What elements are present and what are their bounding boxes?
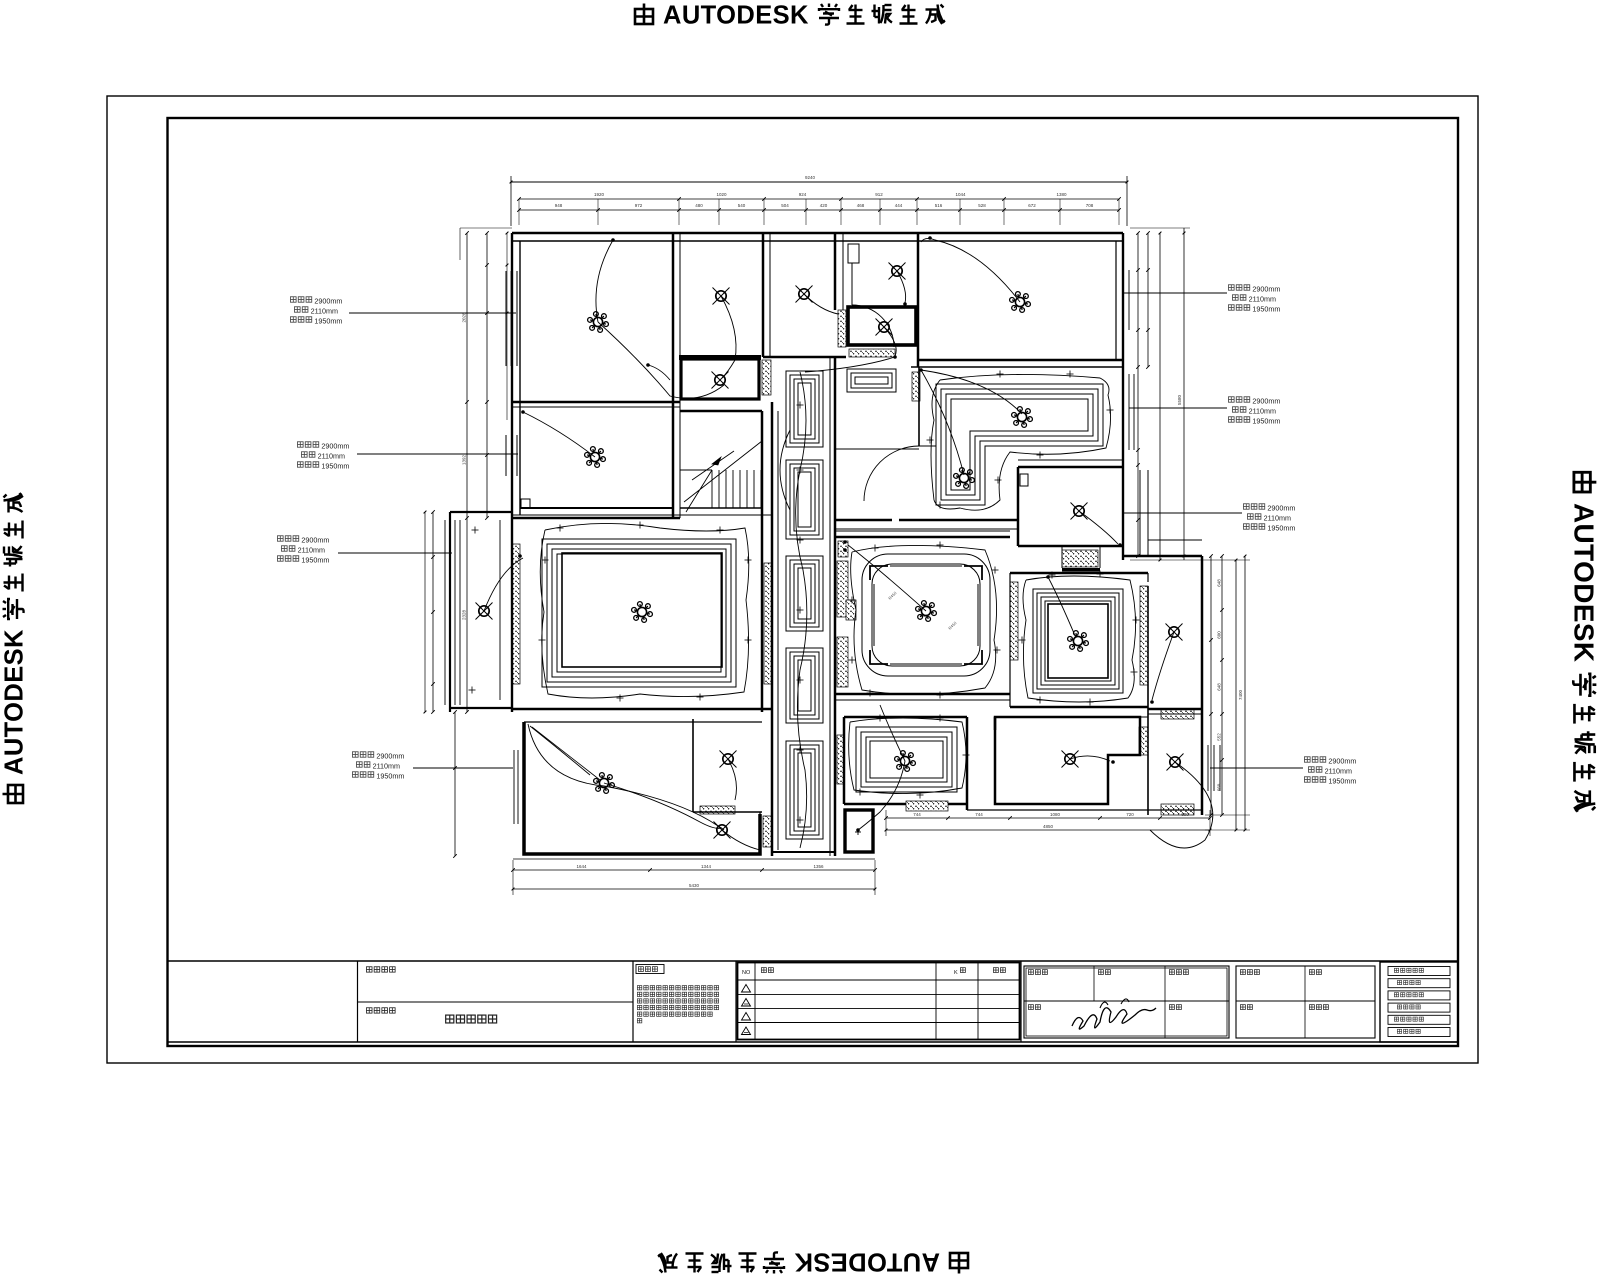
svg-text:NO: NO [742,970,751,976]
svg-text:1044: 1044 [955,192,966,197]
svg-text:1392: 1392 [462,454,467,465]
svg-text:660: 660 [1217,783,1222,791]
svg-text:744: 744 [975,812,983,817]
svg-text:516: 516 [935,203,943,208]
svg-text:1950mm: 1950mm [314,317,342,326]
svg-text:972: 972 [635,203,643,208]
svg-text:2900mm: 2900mm [1252,285,1280,294]
svg-text:2110mm: 2110mm [1249,407,1276,416]
svg-text:1020: 1020 [716,192,727,197]
svg-text:AUTODESK: AUTODESK [1568,503,1599,663]
svg-text:2900mm: 2900mm [376,752,404,761]
svg-text:720: 720 [1126,812,1134,817]
svg-text:420: 420 [820,203,828,208]
svg-text:4850: 4850 [1043,824,1054,829]
svg-text:9240: 9240 [805,175,816,180]
svg-text:672: 672 [1028,203,1036,208]
svg-text:1080: 1080 [1050,812,1061,817]
svg-text:2900mm: 2900mm [314,297,342,306]
svg-text:1356: 1356 [813,864,824,869]
svg-text:1950mm: 1950mm [1252,305,1280,314]
svg-text:AUTODESK: AUTODESK [1,629,29,775]
svg-text:2900mm: 2900mm [1252,397,1280,406]
svg-text:948: 948 [555,203,563,208]
svg-text:1950mm: 1950mm [301,556,329,565]
svg-text:1920: 1920 [594,192,605,197]
svg-text:552: 552 [1217,733,1222,741]
svg-text:AUTODESK: AUTODESK [794,1248,940,1276]
svg-text:AUTODESK: AUTODESK [663,2,809,30]
svg-text:2900mm: 2900mm [321,442,349,451]
svg-text:2110mm: 2110mm [373,762,400,771]
svg-text:480: 480 [695,203,703,208]
svg-text:2110mm: 2110mm [1264,514,1291,523]
svg-text:2110mm: 2110mm [298,546,325,555]
svg-text:5430: 5430 [689,883,700,888]
svg-text:2110mm: 2110mm [311,307,338,316]
svg-text:7400: 7400 [1238,689,1243,700]
svg-text:1380: 1380 [1056,192,1067,197]
svg-text:1950mm: 1950mm [1328,777,1356,786]
svg-text:1950mm: 1950mm [1252,417,1280,426]
svg-text:2110mm: 2110mm [318,452,345,461]
svg-text:2110mm: 2110mm [1249,295,1276,304]
svg-text:1950mm: 1950mm [321,462,349,471]
svg-text:2900mm: 2900mm [1328,757,1356,766]
svg-text:600: 600 [1181,812,1189,817]
svg-text:2028: 2028 [462,312,467,323]
svg-text:2110mm: 2110mm [1325,767,1352,776]
svg-text:1344: 1344 [701,864,712,869]
svg-text:1950mm: 1950mm [1267,524,1295,533]
svg-text:468: 468 [857,203,865,208]
svg-text:1644: 1644 [576,864,587,869]
svg-text:912: 912 [875,192,883,197]
svg-text:444: 444 [895,203,903,208]
svg-text:2900mm: 2900mm [1267,504,1295,513]
svg-text:648: 648 [1217,683,1222,691]
svg-text:K: K [954,970,958,976]
svg-text:528: 528 [978,203,986,208]
svg-text:744: 744 [913,812,921,817]
svg-text:540: 540 [738,203,746,208]
svg-text:648: 648 [1217,579,1222,587]
svg-text:708: 708 [1086,203,1094,208]
svg-text:2900mm: 2900mm [301,536,329,545]
svg-text:5580: 5580 [1177,394,1182,405]
svg-text:2328: 2328 [462,609,467,620]
svg-text:924: 924 [799,192,807,197]
svg-text:504: 504 [781,203,789,208]
svg-text:1950mm: 1950mm [376,772,404,781]
svg-text:600: 600 [1217,631,1222,639]
